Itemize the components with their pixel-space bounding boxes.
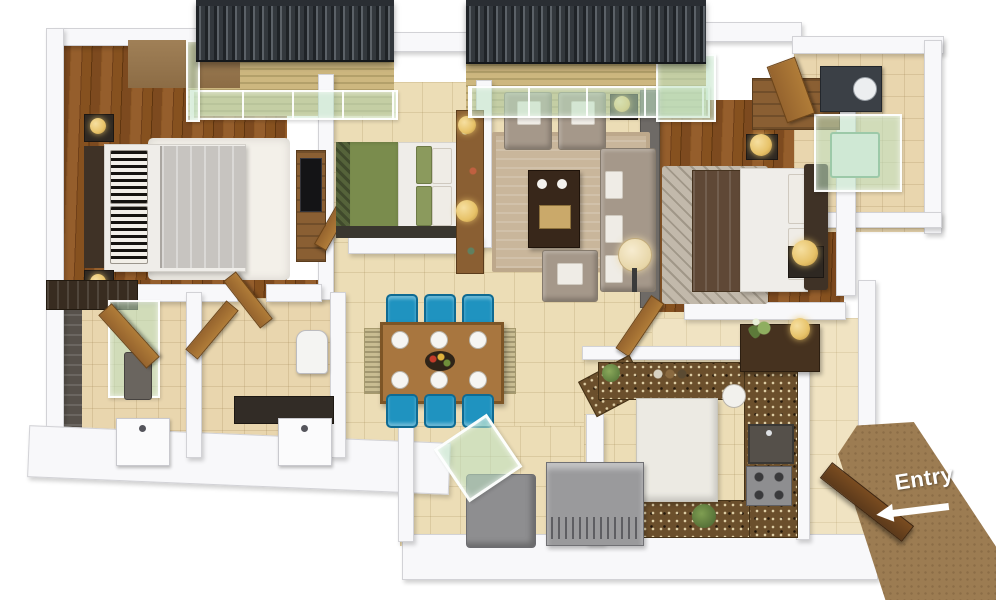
coffee-cup-2	[557, 179, 567, 189]
floorplan-3d-render: Entry	[0, 0, 1000, 600]
kitchen-hob	[746, 466, 792, 506]
bedroom2-green-pillow-2	[416, 186, 432, 226]
armchair3-pillow	[557, 263, 583, 285]
plate	[430, 331, 448, 349]
balcony2-railing	[466, 0, 706, 64]
coffee-table-tray	[539, 205, 571, 229]
appliance-vent-slats	[551, 517, 637, 539]
kitchen-plant-top	[602, 364, 620, 382]
outer-wall-top-right	[698, 22, 802, 42]
utility-appliance-large	[546, 462, 644, 546]
kitchen-plant-bottom	[692, 504, 716, 528]
wall-bath1-bath2	[186, 292, 202, 458]
bedroom1-lamp-top	[90, 118, 106, 134]
bedroom2-footboard	[336, 226, 456, 238]
bathroom3-vanity	[820, 66, 882, 112]
entry-arrow-shaft	[891, 503, 949, 517]
bathroom3-tub	[830, 132, 880, 178]
wall-bath2-hall	[330, 292, 346, 458]
sofa-pillow-1	[605, 171, 623, 199]
bathroom1-faucet	[139, 425, 146, 432]
utility-left-wall	[398, 416, 414, 542]
dining-chair-5	[424, 394, 456, 428]
sofa-pillow-2	[605, 215, 623, 243]
living-coffee-table	[528, 170, 580, 248]
plate	[469, 371, 487, 389]
kitchen-dish	[722, 384, 746, 408]
bedroom2-white-pillow-2	[432, 186, 452, 226]
bedroom2-lamp-bottom	[456, 200, 478, 222]
bathroom2-toilet	[296, 330, 328, 374]
bathroom3-sink	[853, 77, 877, 101]
foyer-lamp	[790, 318, 810, 340]
plate	[430, 371, 448, 389]
bathroom2-sink	[278, 418, 332, 466]
master-balcony-glass-door	[656, 54, 716, 122]
living-floor-lamp	[618, 238, 652, 272]
bathroom1-sink	[116, 418, 170, 466]
bedroom2-tv	[300, 158, 322, 212]
plate	[391, 331, 409, 349]
plate	[391, 371, 409, 389]
master-lamp-bottom	[792, 240, 818, 266]
living-armchair-3	[542, 250, 598, 302]
kitchen-peninsula	[636, 398, 718, 502]
balcony1-railing	[196, 0, 394, 62]
plate	[469, 331, 487, 349]
foyer-plant	[748, 314, 774, 340]
bedroom1-south-wall-b	[266, 284, 322, 302]
kitchen-sink	[748, 424, 794, 464]
bedroom1-striped-pillow-1	[110, 150, 148, 204]
master-lamp-top	[750, 134, 772, 156]
dining-table	[380, 322, 504, 404]
outer-wall-left	[46, 28, 64, 442]
bedroom2-white-pillow-1	[432, 148, 452, 184]
outer-wall-top-mid	[386, 32, 474, 52]
bathroom3-top-wall	[792, 36, 944, 54]
coffee-cup-1	[537, 179, 547, 189]
bedroom1-gray-blanket	[160, 146, 246, 268]
dining-centerpiece	[425, 351, 455, 371]
kitchen-counter-jars	[652, 366, 688, 382]
bedroom2-lamp-top	[458, 116, 476, 134]
dining-chair-4	[386, 394, 418, 428]
balcony1-glass-doors	[190, 90, 398, 120]
wall-kitchen-foyer	[796, 358, 810, 540]
bathroom2-faucet	[301, 425, 308, 432]
bedroom2-green-pillow-1	[416, 146, 432, 184]
bedroom1-headboard	[84, 146, 106, 268]
bedroom1-striped-pillow-2	[110, 206, 148, 264]
floor-lamp-pole	[632, 268, 637, 292]
bedroom2-green-blanket	[350, 142, 402, 230]
bedroom2-shelf-unit	[456, 110, 484, 274]
bathroom3-right-wall	[924, 40, 942, 234]
kitchen-faucet	[766, 430, 772, 436]
